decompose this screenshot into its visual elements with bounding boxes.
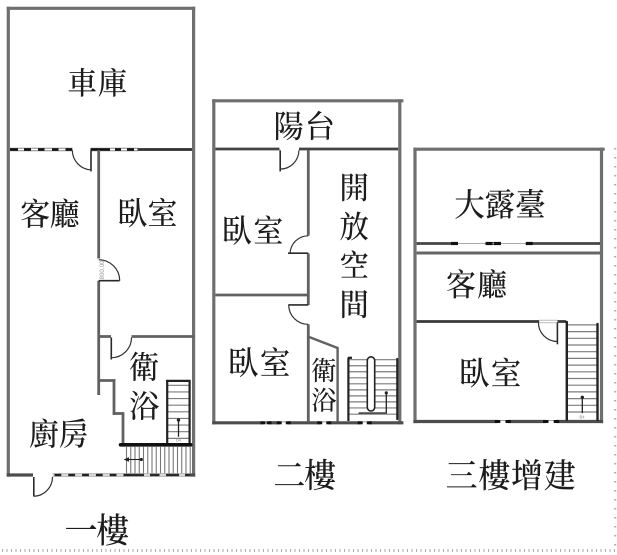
svg-text:B4: B4 <box>176 438 182 443</box>
svg-text:B4: B4 <box>579 415 585 420</box>
svg-text:800.00: 800.00 <box>99 260 106 279</box>
